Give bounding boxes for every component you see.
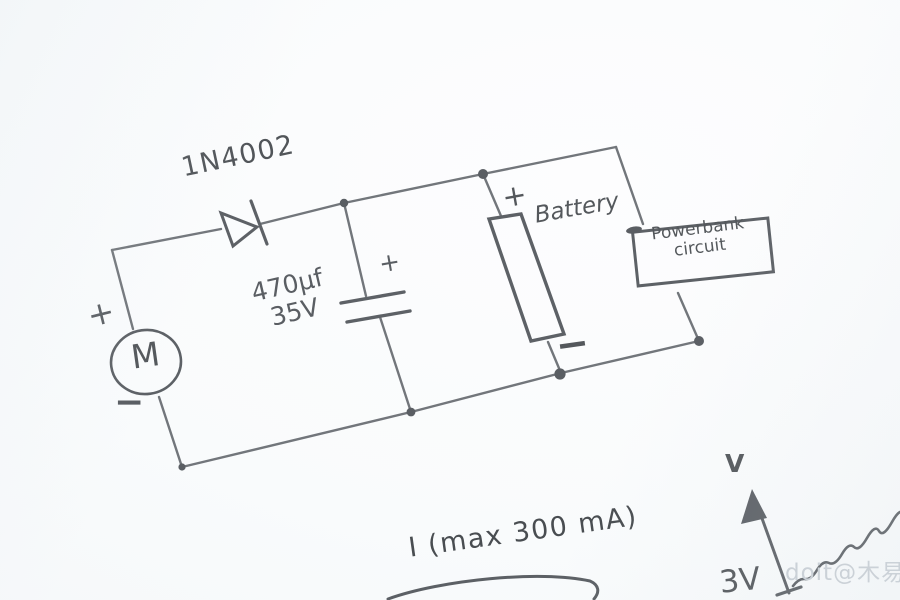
wire-bottom-rail [182, 341, 699, 467]
battery-minus-sign: − [553, 322, 592, 366]
photo-of-circuit-sketch: 1N4002 470µf 35V + M + − + Battery − Pow… [0, 0, 900, 600]
watermark-text: doit@木易 [785, 562, 900, 585]
junction-dot-battery-bottom [554, 368, 565, 379]
wire-battery-top [483, 174, 501, 216]
junction-dot-corner-right [694, 336, 704, 346]
motor-symbol-letter: M [129, 337, 162, 374]
wire-anode-side [112, 229, 221, 250]
battery-outline [489, 214, 564, 341]
junction-dot-corner-left [178, 463, 185, 470]
diode-triangle [221, 213, 257, 246]
wire-box-to-corner [678, 293, 699, 341]
graph-y-axis-label: V [725, 451, 744, 476]
wire-motor-bottom [159, 397, 182, 467]
wire-capacitor-bottom [380, 317, 411, 412]
circuit-drawing [0, 0, 900, 600]
wire-cathode-to-junction [260, 203, 344, 224]
motor-minus-sign: − [114, 385, 144, 421]
junction-dot-battery-top [478, 169, 488, 179]
wire-capacitor-top [344, 203, 366, 296]
v-axis-arrowhead [741, 489, 767, 524]
capacitor-plate-bottom [347, 311, 410, 322]
note-underline-curve [388, 576, 598, 599]
junction-dot-diode [340, 199, 348, 207]
capacitor-plus-sign: + [377, 248, 402, 276]
junction-dot-capacitor [407, 408, 416, 417]
battery-plus-sign: + [500, 180, 529, 213]
capacitor-plate-top [341, 292, 404, 303]
graph-y-axis-tick-label: 3V [718, 564, 762, 599]
